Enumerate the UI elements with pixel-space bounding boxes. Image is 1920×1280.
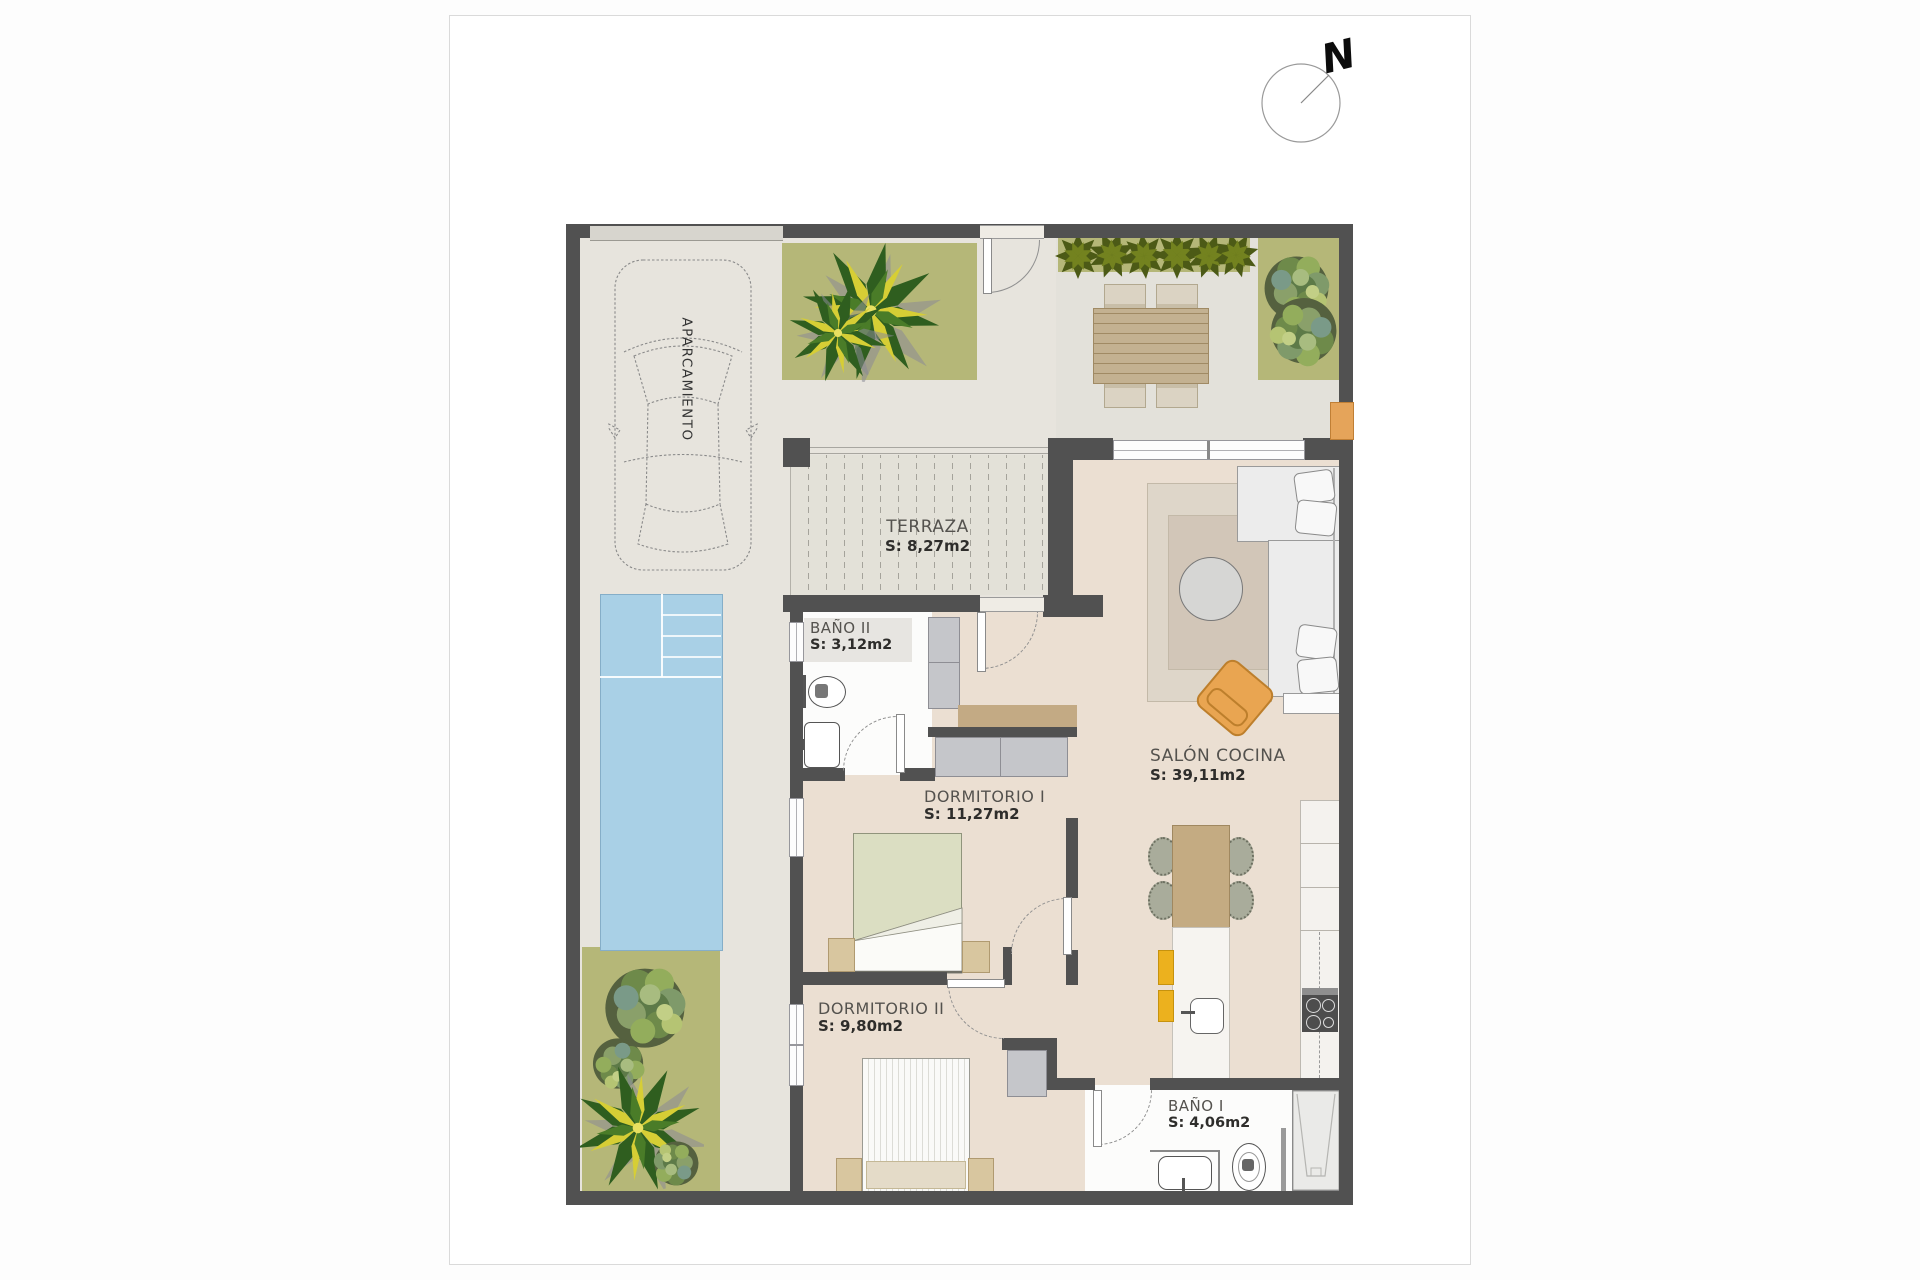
side-table <box>1283 693 1341 714</box>
wall-hall-top <box>1043 595 1103 617</box>
wall-terrace-salon <box>1048 438 1073 614</box>
pergola-line <box>790 453 1048 454</box>
patio-chair <box>1104 380 1146 408</box>
nightstand <box>836 1158 862 1192</box>
bathroom1-door <box>1093 1090 1102 1147</box>
kitchen-table <box>1172 825 1230 929</box>
counter-division <box>1300 930 1340 931</box>
kitchen-counter <box>1300 800 1341 1079</box>
burner <box>1322 999 1335 1012</box>
room-area: S: 8,27m2 <box>870 538 985 555</box>
room-area: S: 9,80m2 <box>818 1018 944 1035</box>
window-divider <box>790 1044 803 1046</box>
island-sink <box>1190 998 1224 1034</box>
bush-icon <box>1260 292 1348 378</box>
wall-terrace-bottom <box>783 595 980 612</box>
wall-bathroom2-bottom-right <box>900 768 935 781</box>
room-label-dormitorio2: DORMITORIO II S: 9,80m2 <box>818 1000 944 1036</box>
room-label-bano2: BAÑO II S: 3,12m2 <box>804 618 912 662</box>
toilet <box>1232 1143 1266 1191</box>
bedroom1-window <box>789 798 804 857</box>
burner <box>1306 1015 1321 1030</box>
bed-dormitorio-2 <box>862 1058 970 1193</box>
room-area: S: 4,06m2 <box>1168 1115 1250 1132</box>
kitchen-stool <box>1158 990 1174 1022</box>
bathroom-sink <box>804 722 840 768</box>
compass-icon <box>1255 38 1375 148</box>
cooktop-panel <box>1302 988 1338 995</box>
bed-pillow <box>866 1161 966 1189</box>
patio-chair <box>1156 380 1198 408</box>
pool-step-line <box>661 635 721 637</box>
room-area: S: 11,27m2 <box>924 806 1045 823</box>
wall-closet <box>928 727 1077 737</box>
bedroom2-window <box>789 1004 804 1086</box>
counter-division <box>1300 843 1340 844</box>
wall-bedrooms <box>800 972 947 985</box>
wall-bathroom1-left <box>1045 1078 1095 1090</box>
room-area: S: 3,12m2 <box>810 637 912 654</box>
pool-step-line <box>600 676 721 678</box>
wardrobe-divider <box>929 662 959 663</box>
bathroom-sink <box>1158 1156 1212 1190</box>
bathroom2-door <box>896 714 905 773</box>
room-name: TERRAZA <box>870 518 985 538</box>
outer-wall-bottom <box>566 1191 1353 1205</box>
bathroom2-window <box>789 622 804 662</box>
terrace-door <box>977 612 986 672</box>
wall-salon-top-right <box>1303 438 1353 460</box>
bed-dormitorio-1 <box>853 833 963 975</box>
nightstand <box>962 941 990 973</box>
room-name: BAÑO II <box>810 620 912 637</box>
bedroom2-wardrobe <box>1007 1050 1047 1097</box>
kitchen-stool <box>1158 950 1174 985</box>
sink-faucet <box>1182 1178 1185 1192</box>
room-label-terraza: TERRAZA S: 8,27m2 <box>870 518 985 555</box>
sofa-cushion <box>1296 656 1339 695</box>
shower <box>1292 1090 1340 1191</box>
coffee-table <box>1179 557 1243 621</box>
salon-window <box>1113 440 1305 460</box>
room-name: BAÑO I <box>1168 1098 1250 1115</box>
room-label-bano1: BAÑO I S: 4,06m2 <box>1168 1098 1250 1132</box>
bedroom1-wardrobe <box>935 737 1068 777</box>
parking-label: APARCAMIENTO <box>680 310 695 450</box>
patio-table <box>1093 308 1209 384</box>
toilet-lid <box>1242 1159 1254 1171</box>
burner <box>1306 998 1321 1013</box>
room-area: S: 39,11m2 <box>1150 767 1286 784</box>
pool-step-line <box>661 656 721 658</box>
wall-hall-salon <box>1066 818 1078 898</box>
bedroom2-door <box>947 979 1005 988</box>
pergola-pillar <box>783 438 810 467</box>
room-label-salon: SALÓN COCINA S: 39,11m2 <box>1150 747 1286 784</box>
window-divider <box>1207 441 1210 459</box>
hall-cabinet <box>958 705 1077 727</box>
north-arrow-icon <box>1301 75 1329 103</box>
patio-cabinet <box>1330 402 1354 440</box>
wall-corridor <box>1002 1038 1057 1050</box>
wall-bathroom2-bottom-left <box>800 768 845 781</box>
pergola-line <box>790 447 1048 448</box>
terrace-door-opening <box>980 597 1044 612</box>
wardrobe-divider <box>1000 738 1001 776</box>
sofa-cushion <box>1294 499 1337 537</box>
room-label-dormitorio1: DORMITORIO I S: 11,27m2 <box>924 788 1045 824</box>
toilet <box>808 676 846 708</box>
counter-division <box>1300 887 1340 888</box>
wall-bathroom1-right <box>1150 1078 1340 1090</box>
room-name: DORMITORIO II <box>818 1000 944 1018</box>
wall-salon-top-left <box>1048 438 1113 460</box>
island-faucet <box>1181 1011 1195 1014</box>
room-name: SALÓN COCINA <box>1150 747 1286 767</box>
outer-wall-left <box>566 224 580 1205</box>
outer-wall-right <box>1339 224 1353 1205</box>
building-wall-left <box>790 595 803 1191</box>
entrance-opening <box>980 225 1044 239</box>
shower-partition <box>1281 1128 1286 1191</box>
cooktop <box>1302 988 1338 1032</box>
burner <box>1323 1017 1334 1028</box>
pool-step-line <box>661 614 721 616</box>
room-name: DORMITORIO I <box>924 788 1045 806</box>
nightstand <box>828 938 855 972</box>
palm-tree-icon <box>782 282 894 384</box>
hall-wardrobe <box>928 617 960 709</box>
driveway-gate <box>590 226 783 241</box>
bedroom1-door <box>1063 897 1072 955</box>
bush-icon <box>642 1136 706 1194</box>
entrance-door <box>983 238 992 294</box>
wall-hall-salon-lower <box>1066 950 1078 985</box>
nightstand <box>968 1158 994 1192</box>
toilet-lid <box>815 684 828 698</box>
